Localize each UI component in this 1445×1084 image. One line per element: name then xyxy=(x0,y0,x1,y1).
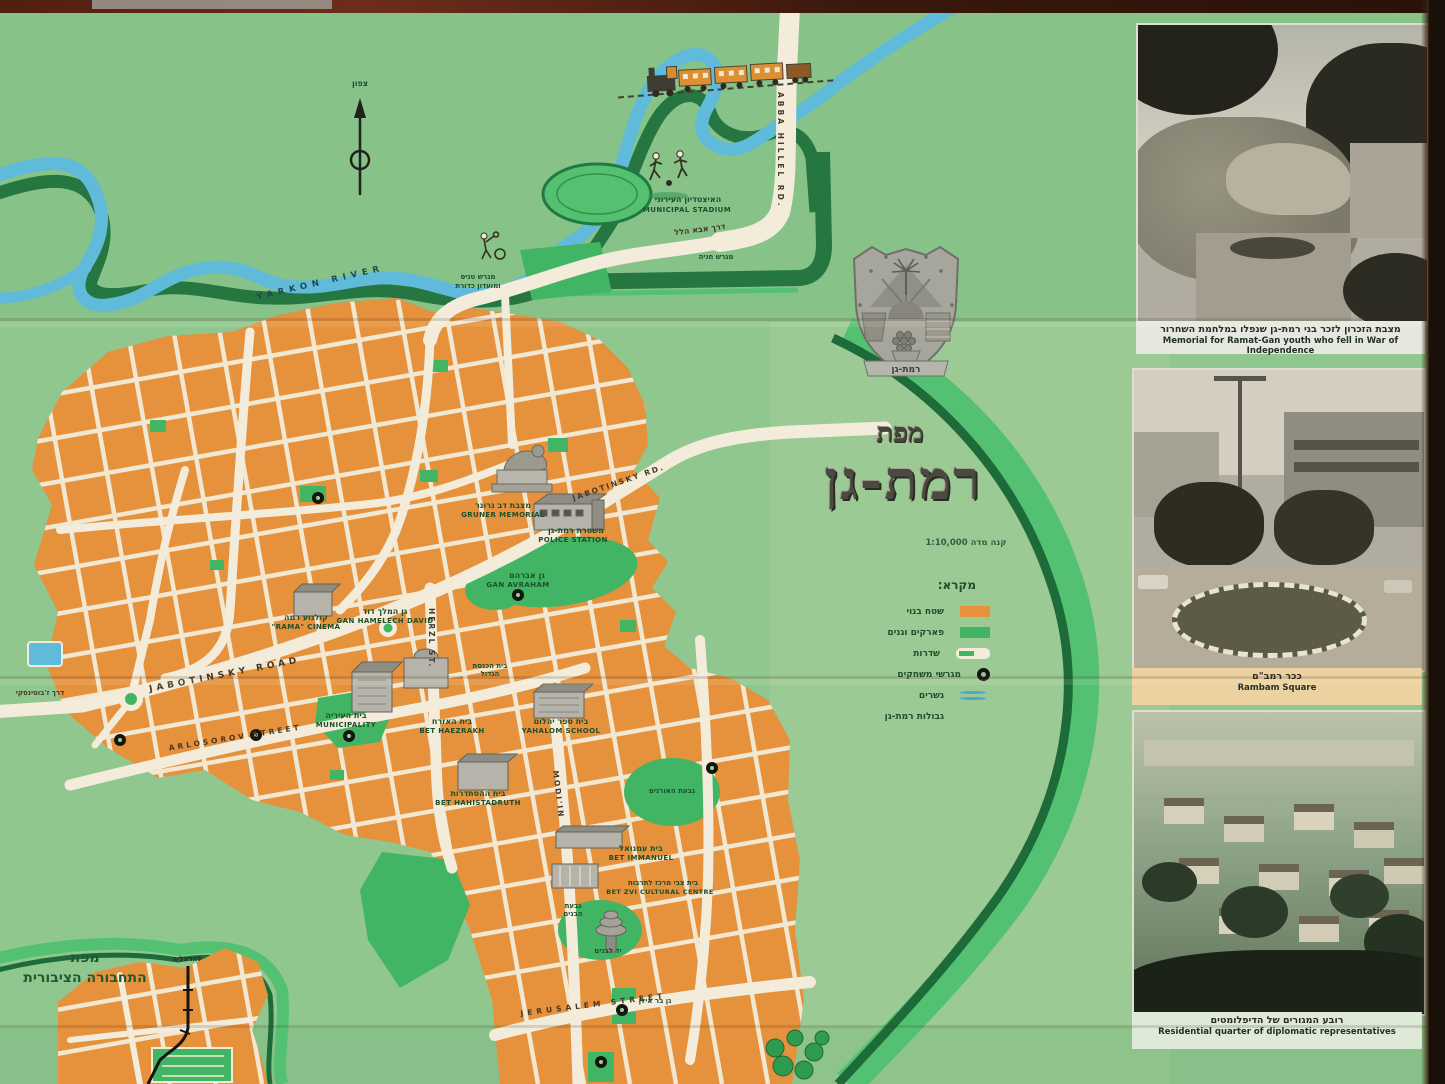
police-station-en: POLICE STATION xyxy=(538,537,607,545)
photo-caption: ככר רמב"ם Rambam Square xyxy=(1132,668,1422,705)
photo-art xyxy=(1164,798,1204,806)
photo-art xyxy=(1142,862,1197,902)
background-highlight xyxy=(92,0,332,9)
inset-title-2: התחבורה הציבורית xyxy=(23,970,146,986)
boulevard-swatch xyxy=(956,648,990,659)
boundary-swatch xyxy=(960,711,990,722)
caption-en: Residential quarter of diplomatic repres… xyxy=(1132,1027,1422,1037)
legend-label: שטח בנוי xyxy=(906,607,944,617)
gan-avraham-he: גן אברהם xyxy=(509,572,545,581)
municipality-en: MUNICIPALITY xyxy=(316,722,376,730)
ramat-gan-map-photo: רמת-גן צפון מפת רמת-גן קנה מדה 1:10,000 … xyxy=(0,0,1445,1084)
legend-label: פארקים וגנים xyxy=(887,628,944,638)
photo-art xyxy=(1138,575,1168,589)
legend-item-built: שטח בנוי xyxy=(840,606,990,617)
built-area-swatch xyxy=(960,606,990,617)
photo-art xyxy=(1144,740,1414,766)
photo-art xyxy=(1214,376,1266,381)
givat-banim-2: הבנים xyxy=(563,911,582,919)
map-title-name: רמת-גן xyxy=(824,448,981,512)
legend-title: מקרא: xyxy=(840,578,990,592)
bridge-swatch xyxy=(960,690,990,701)
bet-immanuel-he: בית עמנואל xyxy=(619,845,663,854)
legend-label: גשרים xyxy=(919,691,944,701)
legend-item-boulevards: שדרות xyxy=(840,648,990,659)
rama-cinema-en: "RAMA" CINEMA xyxy=(272,624,341,632)
legend-item-bridges: גשרים xyxy=(840,690,990,701)
legend-item-parks: פארקים וגנים xyxy=(840,627,990,638)
inset-title-1: מפת xyxy=(71,950,100,966)
parks-swatch xyxy=(960,627,990,638)
legend-item-boundaries: גבולות רמת-גן xyxy=(840,711,990,722)
bet-zvi-he: בית צבי מרכז לתרבות xyxy=(628,880,698,888)
gruner-memorial-he: מצבת דב גרונר xyxy=(475,502,531,511)
stadium-label-en: MUNICIPAL STADIUM xyxy=(643,207,731,215)
bet-haezrach-he: בית האזרח xyxy=(432,718,472,727)
north-label: צפון xyxy=(352,80,368,89)
photo-art xyxy=(1154,482,1264,567)
bet-haezrach-en: BET HAEZRAKH xyxy=(419,728,484,736)
map-scale: קנה מדה 1:10,000 xyxy=(926,538,1007,548)
photo-art xyxy=(1384,580,1412,593)
map-title-prefix: מפת xyxy=(876,418,923,449)
photo-art xyxy=(1230,237,1315,259)
fold-highlight xyxy=(0,679,1428,685)
tennis-label-2: ומועדון כדורת xyxy=(455,283,500,291)
photo-art xyxy=(1274,490,1374,565)
photo-art xyxy=(1294,440,1419,450)
histadrut-en: BET HAHISTADRUTH xyxy=(435,800,521,808)
yad-labanim-label: יד לבנים xyxy=(594,948,621,956)
abba-hillel-road-label: ABBA HILLEL RD. xyxy=(776,92,785,209)
photo-diplomatic-quarter xyxy=(1132,710,1426,1016)
stadium-label-he: האיצטדיון העירוני xyxy=(655,196,721,205)
photo-art xyxy=(1350,143,1429,238)
rama-cinema-he: קולנוע רמה xyxy=(284,614,328,623)
gan-bar-ilan-label: גן בר אילן xyxy=(639,998,672,1006)
caption-en: Memorial for Ramat-Gan youth who fell in… xyxy=(1136,336,1425,356)
photo-art xyxy=(1132,950,1426,1016)
police-station-he: משטרת רמת-גן xyxy=(548,527,604,536)
fold-line xyxy=(0,1025,1428,1028)
legend-label: גבולות רמת-גן xyxy=(885,712,944,722)
photo-memorial xyxy=(1136,23,1429,325)
pines-hill-label: גבעת האורנים xyxy=(649,788,695,796)
municipality-he: בית העיריה xyxy=(325,712,366,721)
bet-immanuel-en: BET IMMANUEL xyxy=(609,855,674,863)
gan-avraham-en: GAN AVRAHAM xyxy=(486,582,549,590)
photo-art xyxy=(1294,462,1419,472)
gruner-memorial-en: GRUNER MEMORIAL xyxy=(461,512,545,520)
yahalom-school-en: YAHALOM SCHOOL xyxy=(522,728,601,736)
gan-david-he: גן המלך דוד xyxy=(363,608,408,617)
fold-highlight xyxy=(0,321,1428,327)
table-background-right xyxy=(1428,0,1445,1084)
emblem-banner-text: רמת-גן xyxy=(892,365,921,375)
jabotinsky-he-label: דרך ז'בוטינסקי xyxy=(16,690,64,698)
gan-david-en: GAN HAMELECH DAVID xyxy=(337,618,434,626)
bet-zvi-en: BET ZVI CULTURAL CENTRE xyxy=(606,889,714,896)
photo-art xyxy=(1343,253,1429,325)
to-herzliya-label: להרצליה xyxy=(173,956,202,964)
legend: מקרא: שטח בנוי פארקים וגנים שדרות מגרשי … xyxy=(840,578,990,732)
photo-rambam-square xyxy=(1132,368,1426,672)
parking-label: מגרש חניה xyxy=(698,254,733,262)
legend-label: שדרות xyxy=(913,649,940,659)
photo-caption: רובע המגורים של הדיפלומטים Residential q… xyxy=(1132,1012,1422,1049)
yahalom-school-he: בית ספר יהלום xyxy=(534,718,589,727)
photo-art xyxy=(1172,582,1367,658)
paper-edge-shadow xyxy=(1421,0,1429,1084)
tennis-label-1: מגרש טניס xyxy=(461,274,496,282)
histadrut-he: בית ההסתדרות xyxy=(450,790,505,799)
